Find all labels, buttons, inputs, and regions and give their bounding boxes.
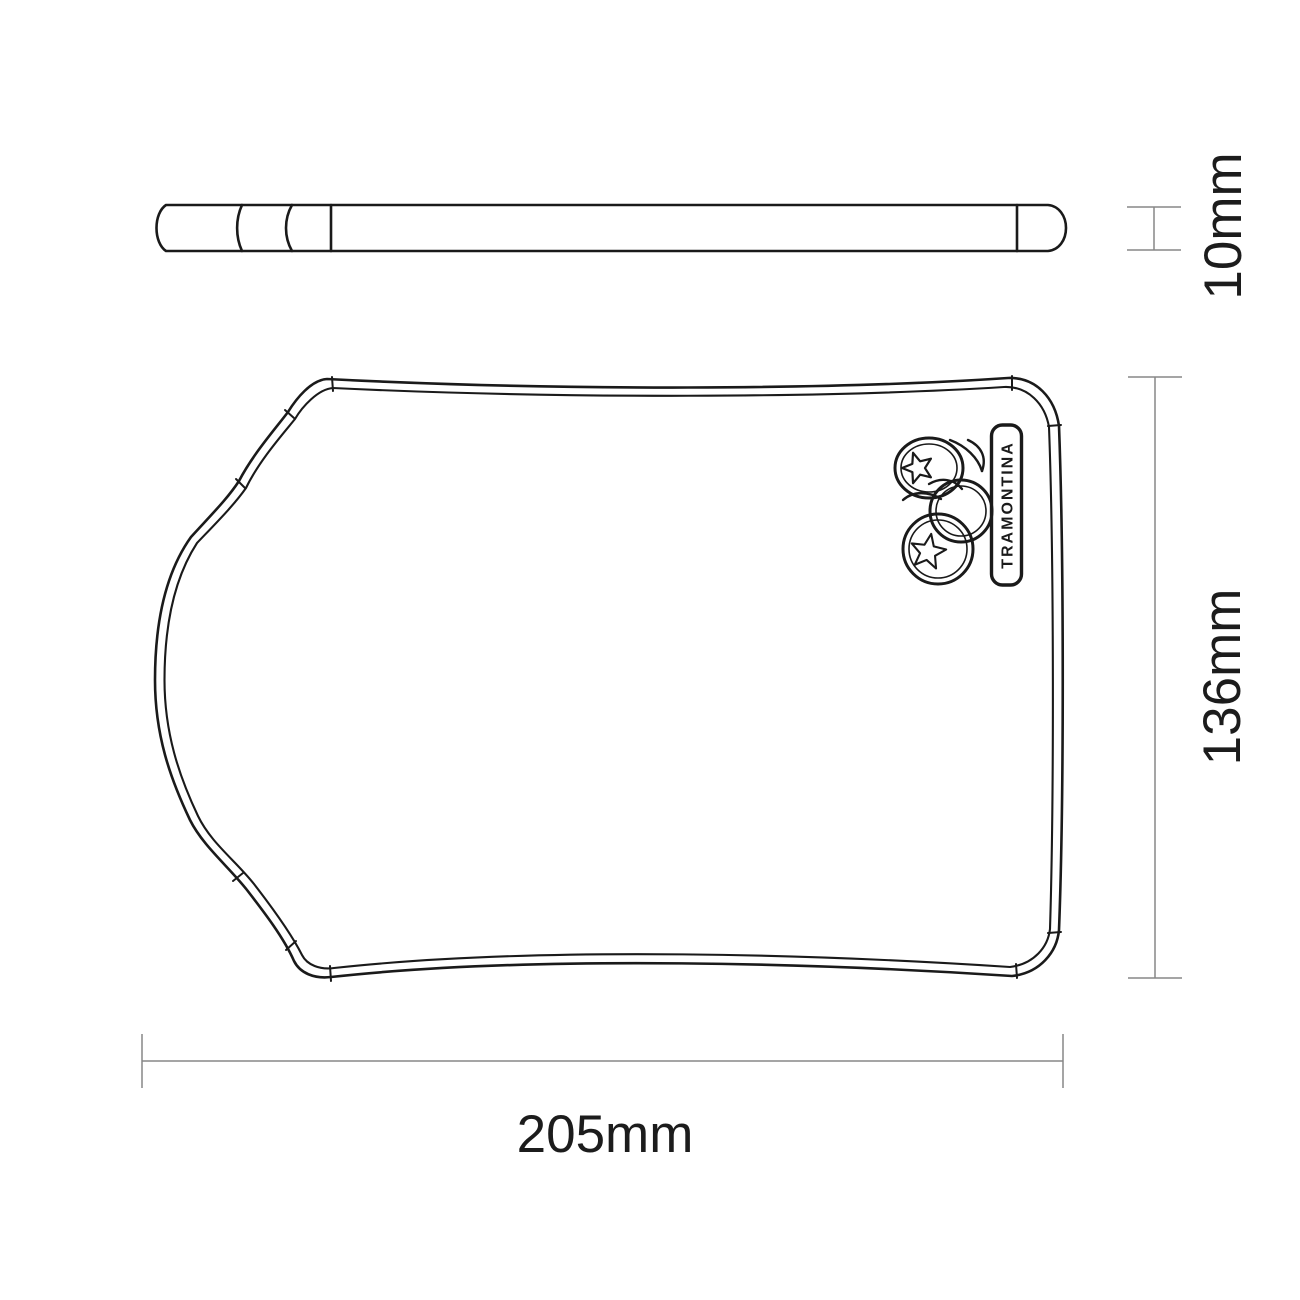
top-view [155,376,1063,981]
thickness-dimension-label: 10mm [1194,152,1253,299]
cutting-board-technical-drawing: TRAMONTINA 10mm 136mm 205mm [0,0,1300,1300]
tick-mark [332,377,333,391]
side-section-curve-1 [237,205,242,251]
height-dimension-label: 136mm [1193,589,1252,766]
side-section-curve-2 [286,205,292,251]
thickness-dimension [1127,207,1181,250]
tomato-top-outline [895,438,963,498]
tick-mark [330,966,331,981]
technical-drawing-canvas: TRAMONTINA 10mm 136mm 205mm [0,0,1300,1300]
side-profile-outline [157,205,1067,251]
brand-badge-label: TRAMONTINA [1000,441,1017,569]
tick-mark [1048,932,1061,933]
tomato-bottom-outline [903,514,973,584]
width-dimension [142,1034,1063,1088]
tomatoes-icon [895,438,992,584]
dimension-annotations [142,207,1182,1088]
height-dimension [1128,377,1182,978]
tomato-middle-inner-line [936,486,986,536]
tick-mark [1016,964,1017,978]
side-profile-view [157,205,1067,251]
segment-tick-marks [233,376,1061,981]
tick-mark [1048,425,1061,426]
board-outer-edge [155,378,1063,977]
width-dimension-label: 205mm [517,1105,694,1164]
